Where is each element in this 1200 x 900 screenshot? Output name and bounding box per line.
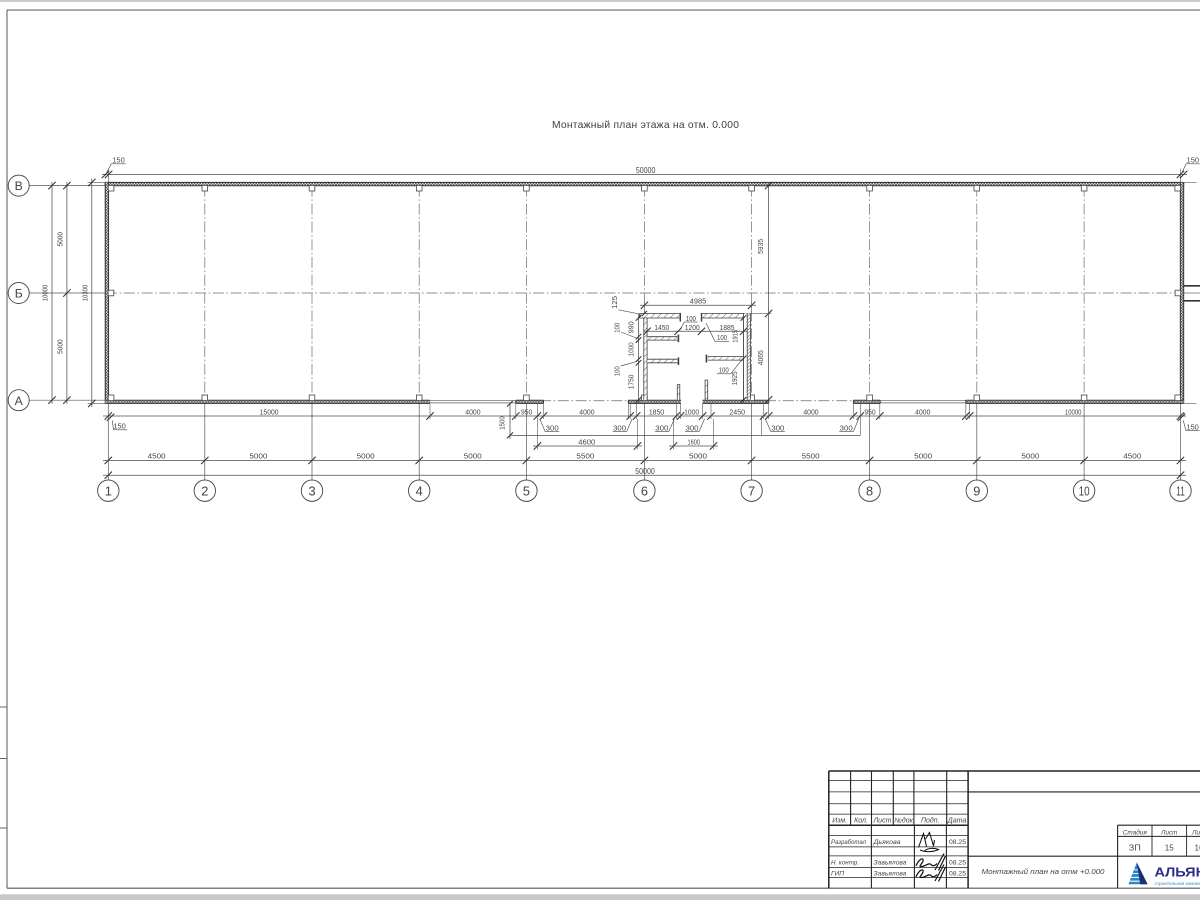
svg-text:4500: 4500 xyxy=(148,452,166,461)
svg-text:ЗП: ЗП xyxy=(1129,843,1141,853)
svg-text:5000: 5000 xyxy=(914,452,932,461)
svg-text:15000: 15000 xyxy=(260,407,279,416)
svg-text:6: 6 xyxy=(641,483,648,498)
svg-text:Дьякова: Дьякова xyxy=(872,839,900,846)
svg-text:950: 950 xyxy=(864,407,875,416)
svg-text:Завьялова: Завьялова xyxy=(874,870,907,877)
svg-text:5000: 5000 xyxy=(56,232,65,247)
svg-text:1600: 1600 xyxy=(688,437,701,446)
svg-text:125: 125 xyxy=(610,296,619,309)
svg-text:150: 150 xyxy=(113,422,126,431)
svg-text:150: 150 xyxy=(1187,156,1200,165)
svg-text:7: 7 xyxy=(748,483,755,498)
svg-text:100: 100 xyxy=(686,314,696,323)
svg-text:Завьялова: Завьялова xyxy=(874,860,907,867)
svg-text:4000: 4000 xyxy=(465,407,480,416)
svg-text:Монтажный план на отм +0.000: Монтажный план на отм +0.000 xyxy=(982,867,1106,876)
svg-text:1000: 1000 xyxy=(627,342,636,356)
svg-text:1000: 1000 xyxy=(684,407,699,416)
svg-text:Подп.: Подп. xyxy=(921,816,940,824)
svg-text:50000: 50000 xyxy=(636,166,656,175)
svg-text:5000: 5000 xyxy=(56,339,65,354)
svg-text:5500: 5500 xyxy=(576,452,594,461)
svg-text:ГИП: ГИП xyxy=(831,870,844,877)
svg-text:4000: 4000 xyxy=(579,407,594,416)
svg-text:8: 8 xyxy=(866,483,873,498)
svg-text:10300: 10300 xyxy=(81,285,90,302)
svg-text:4500: 4500 xyxy=(1123,452,1141,461)
svg-text:150: 150 xyxy=(1186,422,1199,431)
svg-text:5500: 5500 xyxy=(802,452,820,461)
svg-text:1200: 1200 xyxy=(685,323,700,332)
svg-text:5000: 5000 xyxy=(1021,452,1039,461)
svg-text:1750: 1750 xyxy=(627,375,636,390)
svg-text:300: 300 xyxy=(613,424,626,433)
svg-text:100: 100 xyxy=(613,366,622,376)
svg-text:08.25: 08.25 xyxy=(949,870,966,877)
svg-text:11: 11 xyxy=(1176,483,1185,498)
svg-text:300: 300 xyxy=(686,424,699,433)
svg-text:1850: 1850 xyxy=(649,407,664,416)
svg-text:5000: 5000 xyxy=(464,452,482,461)
svg-text:300: 300 xyxy=(840,424,853,433)
svg-text:Листов: Листов xyxy=(1191,829,1200,836)
svg-text:5000: 5000 xyxy=(249,452,267,461)
svg-text:Н. контр.: Н. контр. xyxy=(831,860,859,867)
svg-text:100: 100 xyxy=(613,323,622,333)
svg-text:Монтажный план этажа на отм. 0: Монтажный план этажа на отм. 0.000 xyxy=(552,120,739,131)
svg-text:2: 2 xyxy=(201,483,208,498)
svg-text:300: 300 xyxy=(655,424,668,433)
svg-text:АЛЬЯНС: АЛЬЯНС xyxy=(1155,865,1200,880)
svg-text:100: 100 xyxy=(717,333,727,342)
svg-text:300: 300 xyxy=(771,424,784,433)
svg-text:16: 16 xyxy=(1195,843,1200,853)
svg-text:10000: 10000 xyxy=(1065,407,1082,416)
svg-text:Лист: Лист xyxy=(872,817,891,824)
svg-text:В: В xyxy=(15,179,23,193)
svg-text:10: 10 xyxy=(1079,483,1090,498)
svg-text:№док: №док xyxy=(894,816,913,824)
svg-text:4000: 4000 xyxy=(803,407,818,416)
svg-text:100: 100 xyxy=(719,366,729,375)
svg-text:Изм.: Изм. xyxy=(832,817,847,824)
svg-text:10000: 10000 xyxy=(41,285,50,302)
svg-text:50000: 50000 xyxy=(635,467,655,476)
svg-text:3: 3 xyxy=(308,483,315,498)
svg-text:4600: 4600 xyxy=(578,437,595,446)
svg-text:2450: 2450 xyxy=(729,407,745,416)
svg-text:5: 5 xyxy=(523,483,530,498)
svg-text:Дата: Дата xyxy=(947,817,967,824)
svg-text:08.25: 08.25 xyxy=(949,860,966,867)
svg-text:300: 300 xyxy=(546,424,559,433)
svg-text:150: 150 xyxy=(112,156,125,165)
svg-text:9: 9 xyxy=(973,483,980,498)
svg-text:1915: 1915 xyxy=(731,330,740,343)
svg-text:4: 4 xyxy=(416,483,423,498)
svg-text:Б: Б xyxy=(15,287,23,301)
svg-text:1500: 1500 xyxy=(498,416,507,430)
svg-text:4985: 4985 xyxy=(690,297,707,306)
svg-text:5000: 5000 xyxy=(689,452,707,461)
svg-text:950: 950 xyxy=(521,407,532,416)
svg-text:строительная компания: строительная компания xyxy=(1155,881,1200,886)
svg-text:1: 1 xyxy=(105,483,112,498)
svg-text:15: 15 xyxy=(1165,843,1174,853)
svg-text:4000: 4000 xyxy=(915,407,930,416)
svg-text:990: 990 xyxy=(627,321,636,333)
svg-text:Стадия: Стадия xyxy=(1123,828,1147,836)
svg-text:1450: 1450 xyxy=(654,323,669,332)
svg-text:5000: 5000 xyxy=(357,452,375,461)
svg-text:Разработал: Разработал xyxy=(831,838,866,846)
svg-text:Кол.: Кол. xyxy=(854,817,868,824)
svg-text:08.25: 08.25 xyxy=(949,839,966,846)
svg-text:4065: 4065 xyxy=(756,350,765,365)
svg-text:Лист: Лист xyxy=(1160,829,1177,836)
svg-text:А: А xyxy=(15,394,24,408)
svg-text:5935: 5935 xyxy=(756,239,765,254)
